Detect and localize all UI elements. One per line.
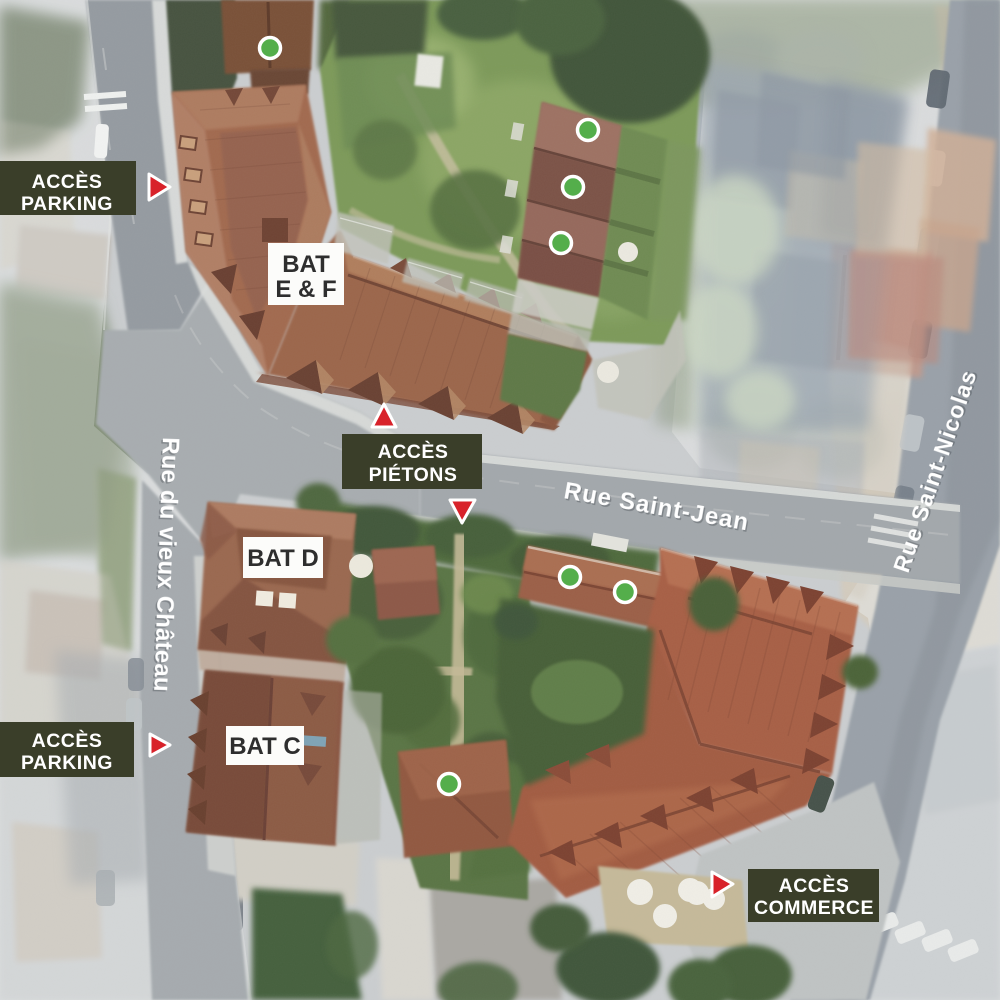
svg-text:ACCÈS: ACCÈS [32,729,103,752]
svg-text:PARKING: PARKING [21,752,113,774]
svg-text:BAT: BAT [282,251,330,278]
svg-text:ACCÈS: ACCÈS [378,440,449,463]
svg-text:COMMERCE: COMMERCE [754,897,874,919]
svg-text:ACCÈS: ACCÈS [32,170,103,193]
svg-text:PARKING: PARKING [21,193,113,215]
svg-text:BAT D: BAT D [247,545,319,572]
svg-text:ACCÈS: ACCÈS [779,874,850,897]
svg-text:BAT C: BAT C [229,733,301,760]
svg-text:PIÉTONS: PIÉTONS [369,463,458,486]
svg-text:E & F: E & F [275,276,336,303]
